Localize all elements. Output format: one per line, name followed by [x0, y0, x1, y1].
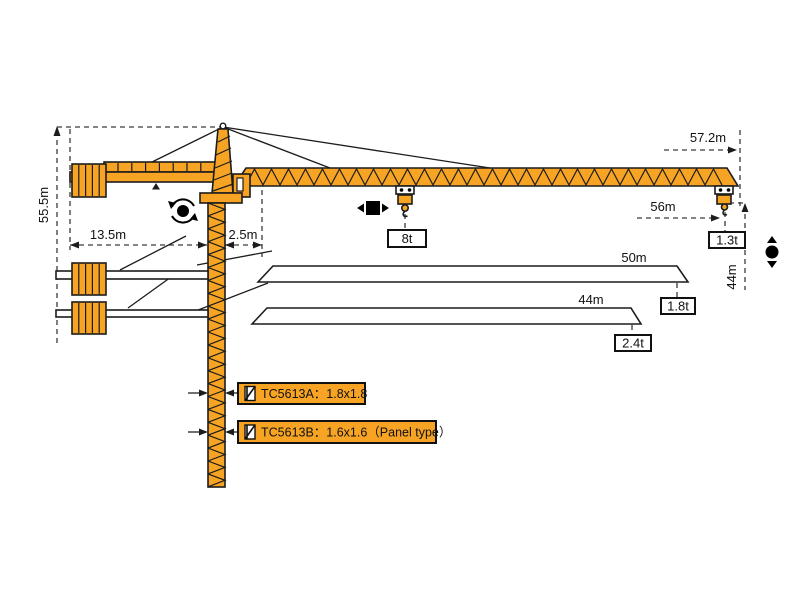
dim-working-radius: 56m [650, 199, 675, 214]
capacity-2-4t-label: 2.4t [622, 336, 644, 351]
trolley-travel-icon [357, 201, 389, 215]
mast-option-b: TC5613B：1.6x1.6（Panel type） [188, 421, 451, 443]
dim-counter-jib: 13.5m [90, 227, 126, 242]
jib-option-44m: 44m 2.4t [252, 292, 651, 351]
apex-pin [220, 123, 226, 129]
trolley [396, 186, 414, 204]
counterweight-option-1 [56, 263, 208, 295]
crane-spec-diagram: 55.5m 13.5m 2.5m 57.2m 56m 44m [0, 0, 800, 600]
jib-option-50m: 50m 1.8t [258, 250, 695, 314]
capacity-1-8t-label: 1.8t [667, 299, 689, 314]
capacity-8t-label: 8t [402, 231, 413, 246]
mast-option-b-label: TC5613B：1.6x1.6（Panel type） [261, 426, 451, 440]
mast-option-a-label: TC5613A：1.8x1.8 [261, 387, 367, 401]
counterweight-option-2 [56, 302, 208, 334]
counter-jib-marker [152, 183, 160, 190]
dim-jib-root: 2.5m [229, 227, 258, 242]
section-icon [245, 387, 255, 401]
counterweight-block [72, 164, 106, 197]
dim-hook-height: 44m [724, 264, 739, 289]
dim-tower-height: 55.5m [36, 187, 51, 223]
tower-mast [208, 203, 225, 487]
jib-50m-label: 50m [621, 250, 646, 265]
slewing-rotation-icon [168, 199, 198, 222]
capacity-1-3t: 1.3t [709, 232, 745, 248]
main-jib [234, 168, 738, 186]
tower-head [212, 123, 233, 193]
jib-44m-label: 44m [578, 292, 603, 307]
hoist-updown-icon [766, 236, 779, 268]
diagram-canvas: 55.5m 13.5m 2.5m 57.2m 56m 44m [0, 0, 800, 600]
counter-jib [70, 162, 215, 197]
slewing-platform [200, 193, 242, 203]
capacity-1-3t-label: 1.3t [716, 233, 738, 248]
section-icon [245, 425, 255, 439]
tip-trolley [715, 186, 733, 204]
dim-max-span: 57.2m [690, 130, 726, 145]
capacity-8t: 8t [388, 230, 426, 247]
